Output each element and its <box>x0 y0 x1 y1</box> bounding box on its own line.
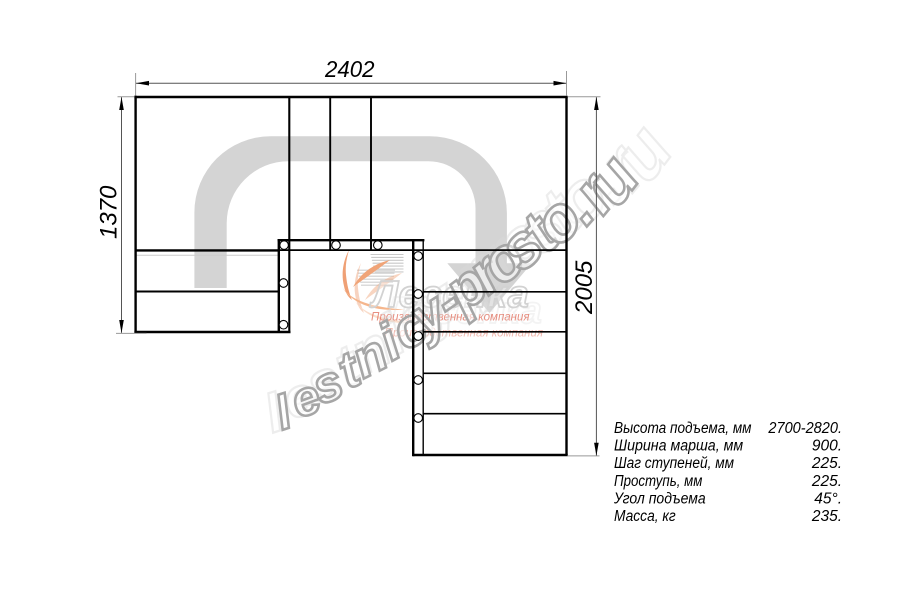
svg-text:1370: 1370 <box>96 185 123 239</box>
svg-text:Ширина марша, мм: Ширина марша, мм <box>614 438 743 455</box>
svg-text:Высота подъема, мм: Высота подъема, мм <box>614 420 752 437</box>
svg-text:900.: 900. <box>812 438 842 455</box>
svg-text:2700-2820.: 2700-2820. <box>767 420 842 437</box>
svg-text:Шаг ступеней, мм: Шаг ступеней, мм <box>614 455 734 472</box>
svg-text:2005: 2005 <box>571 260 598 315</box>
svg-text:2402: 2402 <box>324 56 374 82</box>
svg-text:45°.: 45°. <box>814 490 842 507</box>
svg-text:235.: 235. <box>811 508 842 525</box>
svg-text:Угол подъема: Угол подъема <box>613 490 706 507</box>
svg-text:225.: 225. <box>811 473 842 490</box>
svg-text:225.: 225. <box>811 455 842 472</box>
svg-text:Масса, кг: Масса, кг <box>614 508 676 525</box>
svg-text:Проступь, мм: Проступь, мм <box>614 473 703 490</box>
